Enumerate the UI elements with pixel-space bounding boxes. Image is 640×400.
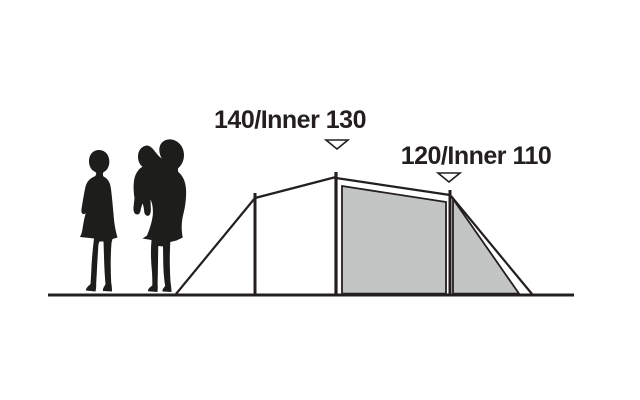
ridge-line bbox=[255, 177, 336, 198]
measurement-label-main: 140/Inner 130 bbox=[214, 108, 366, 133]
tent-dimension-diagram: 140/Inner 130 120/Inner 110 bbox=[0, 0, 640, 400]
inner-tent-panel-main bbox=[342, 186, 446, 294]
inner-tent-panel-rear bbox=[453, 199, 519, 294]
measurement-label-rear: 120/Inner 110 bbox=[401, 144, 552, 169]
down-triangle-icon-main bbox=[326, 140, 348, 149]
down-triangle-icon-rear bbox=[438, 173, 460, 182]
woman-holding-child-silhouette bbox=[133, 139, 186, 292]
tent-front-guy-line bbox=[176, 198, 255, 294]
standing-woman-silhouette bbox=[80, 150, 118, 292]
diagram-canvas bbox=[0, 0, 640, 400]
